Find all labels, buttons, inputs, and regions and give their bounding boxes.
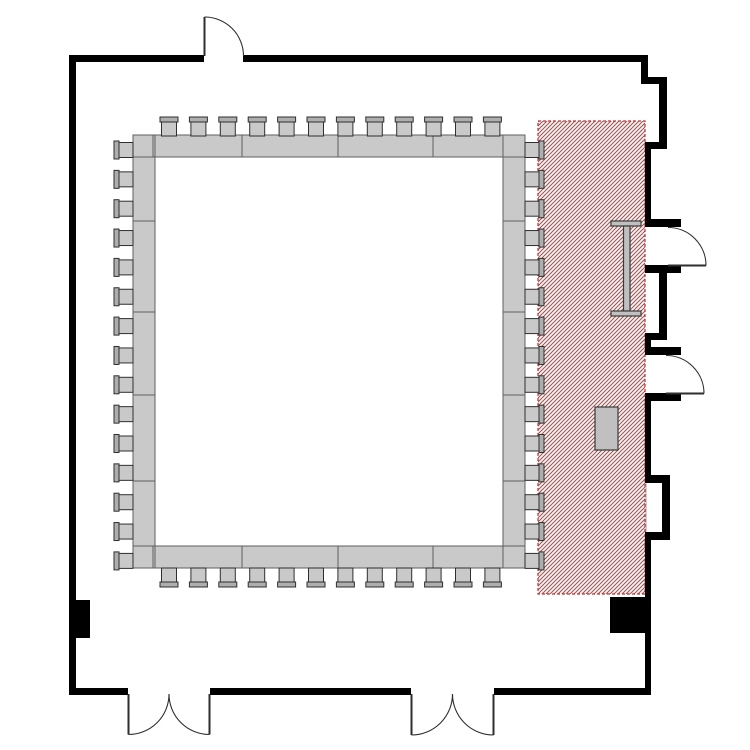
chair-seat: [525, 377, 540, 392]
chair-seat: [279, 121, 294, 136]
chair-seat: [220, 121, 235, 136]
double-door-right-leaf-a-swing-arc: [412, 694, 453, 735]
chair-back: [114, 229, 119, 247]
chair-back: [114, 258, 119, 276]
chair-back: [114, 464, 119, 482]
chair-back: [454, 117, 472, 122]
column-right: [610, 597, 651, 633]
chair-back: [307, 117, 325, 122]
chair-back: [307, 582, 325, 587]
chair-seat: [525, 143, 540, 158]
chair-back: [483, 582, 501, 587]
chair-seat: [426, 568, 441, 583]
chair-seat: [191, 121, 206, 136]
floorplan-svg: [0, 0, 750, 750]
chair-seat: [250, 568, 265, 583]
chair-seat: [191, 568, 206, 583]
wall-right-c: [645, 333, 651, 349]
chair-seat: [118, 465, 133, 480]
wall-top-left: [69, 55, 204, 62]
ibeam-table-stem: [624, 226, 631, 311]
chair-back: [189, 117, 207, 122]
wall-top-right: [243, 55, 648, 62]
hatched-zone: [538, 121, 645, 594]
chair-back: [425, 582, 443, 587]
chair-seat: [525, 172, 540, 187]
chair-seat: [525, 553, 540, 568]
door2-jamb-top: [645, 347, 681, 355]
chair-seat: [118, 407, 133, 422]
wall-right-d: [645, 401, 651, 477]
wall-right-a: [645, 142, 651, 221]
chair-seat: [525, 231, 540, 246]
chair-seat: [525, 407, 540, 422]
chair-seat: [118, 436, 133, 451]
chair-back: [539, 405, 544, 423]
double-door-left-leaf-b-swing-arc: [169, 694, 210, 735]
chair-back: [539, 229, 544, 247]
chair-back: [248, 582, 266, 587]
chair-seat: [118, 524, 133, 539]
chair-back: [189, 582, 207, 587]
chair-back: [114, 405, 119, 423]
wall-niche-interior: [646, 482, 663, 533]
floorplan: [0, 0, 750, 750]
chair-back: [114, 317, 119, 335]
door1-jamb-top: [645, 219, 681, 227]
chair-seat: [338, 568, 353, 583]
chair-seat: [426, 121, 441, 136]
chair-seat: [118, 553, 133, 568]
chair-back: [114, 346, 119, 364]
chair-back: [114, 523, 119, 541]
chair-back: [539, 435, 544, 453]
chair-seat: [525, 201, 540, 216]
chair-back: [539, 141, 544, 159]
chair-seat: [118, 348, 133, 363]
chair-seat: [456, 568, 471, 583]
chair-seat: [525, 260, 540, 275]
wall-right-upper: [659, 77, 667, 145]
chair-seat: [162, 568, 177, 583]
chair-back: [366, 117, 384, 122]
chair-seat: [525, 465, 540, 480]
chair-back: [114, 141, 119, 159]
chair-seat: [525, 524, 540, 539]
chair-seat: [118, 319, 133, 334]
chair-seat: [525, 319, 540, 334]
table-bottom-run: [133, 546, 525, 568]
wall-left: [69, 55, 76, 695]
chair-seat: [250, 121, 265, 136]
chair-back: [114, 200, 119, 218]
double-door-right-leaf-b-swing-arc: [453, 694, 494, 735]
wall-bottom-3: [494, 688, 651, 695]
chair-back: [114, 376, 119, 394]
chair-seat: [397, 121, 412, 136]
chair-seat: [220, 568, 235, 583]
table-right-run: [503, 135, 525, 568]
wall-bottom-2: [210, 688, 411, 695]
chair-seat: [397, 568, 412, 583]
chair-seat: [162, 121, 177, 136]
chair-back: [395, 582, 413, 587]
ibeam-table-top: [611, 221, 641, 226]
chair-back: [160, 582, 178, 587]
wall-bottom-1: [69, 688, 128, 695]
chair-seat: [367, 121, 382, 136]
chair-seat: [309, 121, 324, 136]
chair-back: [539, 258, 544, 276]
chair-back: [539, 552, 544, 570]
chair-back: [539, 170, 544, 188]
chair-seat: [309, 568, 324, 583]
chair-back: [219, 582, 237, 587]
chair-back: [539, 200, 544, 218]
chair-back: [219, 117, 237, 122]
chair-back: [114, 170, 119, 188]
chair-back: [248, 117, 266, 122]
chair-back: [483, 117, 501, 122]
chair-seat: [485, 121, 500, 136]
chair-seat: [525, 436, 540, 451]
chair-back: [539, 376, 544, 394]
door-right-lower-swing-arc: [666, 356, 704, 394]
chair-back: [454, 582, 472, 587]
chair-seat: [118, 172, 133, 187]
chair-back: [425, 117, 443, 122]
wall-niche-bottom: [645, 532, 670, 540]
table-top-run: [133, 135, 525, 157]
chair-back: [539, 493, 544, 511]
chair-seat: [118, 143, 133, 158]
chair-seat: [118, 231, 133, 246]
door-top-swing-arc: [205, 17, 244, 56]
chair-back: [539, 288, 544, 306]
wall-niche-right: [662, 475, 670, 540]
chair-back: [278, 117, 296, 122]
chair-back: [539, 317, 544, 335]
column-left: [69, 600, 90, 638]
chair-seat: [525, 348, 540, 363]
chair-back: [114, 435, 119, 453]
door-right-upper-swing-arc: [668, 228, 706, 266]
chair-back: [539, 346, 544, 364]
chair-back: [160, 117, 178, 122]
service-table: [595, 407, 618, 450]
chair-back: [539, 523, 544, 541]
chair-back: [395, 117, 413, 122]
wall-right-b: [659, 273, 667, 338]
chair-seat: [118, 260, 133, 275]
chair-seat: [118, 495, 133, 510]
chair-seat: [525, 495, 540, 510]
table-left-run: [133, 135, 155, 568]
chair-back: [336, 582, 354, 587]
chair-back: [366, 582, 384, 587]
chair-seat: [338, 121, 353, 136]
chair-seat: [485, 568, 500, 583]
chair-back: [114, 493, 119, 511]
chair-seat: [118, 377, 133, 392]
chair-seat: [118, 289, 133, 304]
chair-seat: [525, 289, 540, 304]
chair-back: [336, 117, 354, 122]
chair-back: [114, 288, 119, 306]
chair-back: [539, 464, 544, 482]
chair-seat: [456, 121, 471, 136]
chair-back: [114, 552, 119, 570]
ibeam-table-bottom: [611, 311, 641, 316]
chair-seat: [367, 568, 382, 583]
chair-seat: [279, 568, 294, 583]
chair-back: [278, 582, 296, 587]
double-door-left-leaf-a-swing-arc: [129, 694, 170, 735]
chair-seat: [118, 201, 133, 216]
